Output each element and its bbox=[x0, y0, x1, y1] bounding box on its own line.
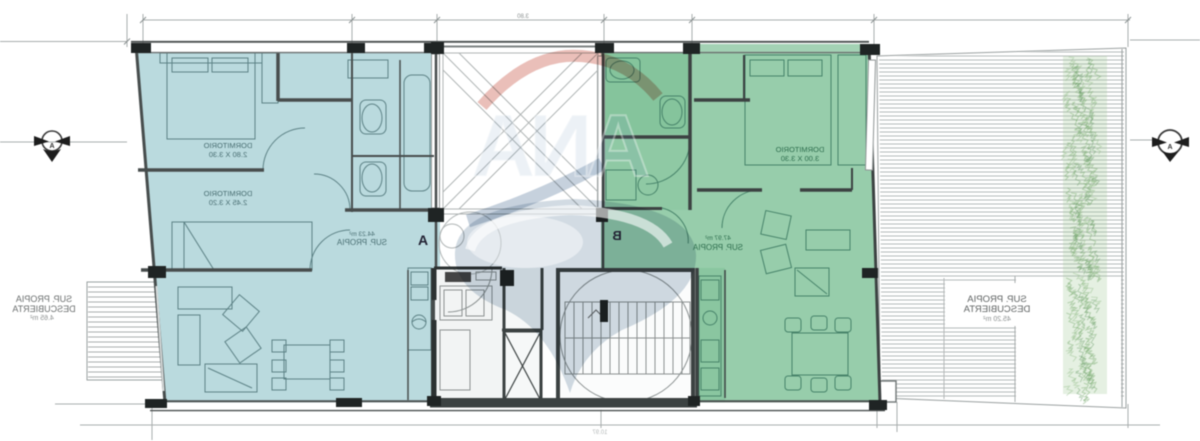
svg-text:47.97 m²: 47.97 m² bbox=[704, 235, 730, 242]
svg-text:DORMITORIO: DORMITORIO bbox=[204, 189, 253, 198]
svg-text:B: B bbox=[612, 228, 621, 243]
svg-text:3.00 X 3.30: 3.00 X 3.30 bbox=[781, 154, 819, 163]
svg-text:10.97: 10.97 bbox=[592, 430, 608, 436]
svg-text:SUP. PROPIA: SUP. PROPIA bbox=[16, 294, 72, 304]
svg-text:DORMITORIO: DORMITORIO bbox=[204, 141, 253, 150]
svg-text:A: A bbox=[49, 143, 54, 150]
svg-text:DESCUBIERTA: DESCUBIERTA bbox=[963, 304, 1030, 315]
svg-text:A: A bbox=[1167, 144, 1172, 151]
svg-text:A: A bbox=[418, 232, 428, 248]
svg-text:SUP. PROPIA: SUP. PROPIA bbox=[336, 238, 387, 247]
svg-text:SUP. PROPIA: SUP. PROPIA bbox=[692, 243, 743, 252]
svg-text:3.80: 3.80 bbox=[517, 14, 529, 20]
svg-text:4.65 m²: 4.65 m² bbox=[29, 315, 53, 322]
svg-text:DESCUBIERTA: DESCUBIERTA bbox=[12, 304, 75, 314]
svg-text:44.23 m²: 44.23 m² bbox=[348, 231, 374, 238]
svg-text:ANA: ANA bbox=[473, 96, 650, 195]
svg-text:2.80 X 3.30: 2.80 X 3.30 bbox=[209, 150, 247, 159]
svg-text:2.45 X 3.20: 2.45 X 3.20 bbox=[209, 198, 247, 207]
svg-text:45.20 m²: 45.20 m² bbox=[983, 316, 1011, 323]
svg-text:DORMITORIO: DORMITORIO bbox=[776, 145, 825, 154]
